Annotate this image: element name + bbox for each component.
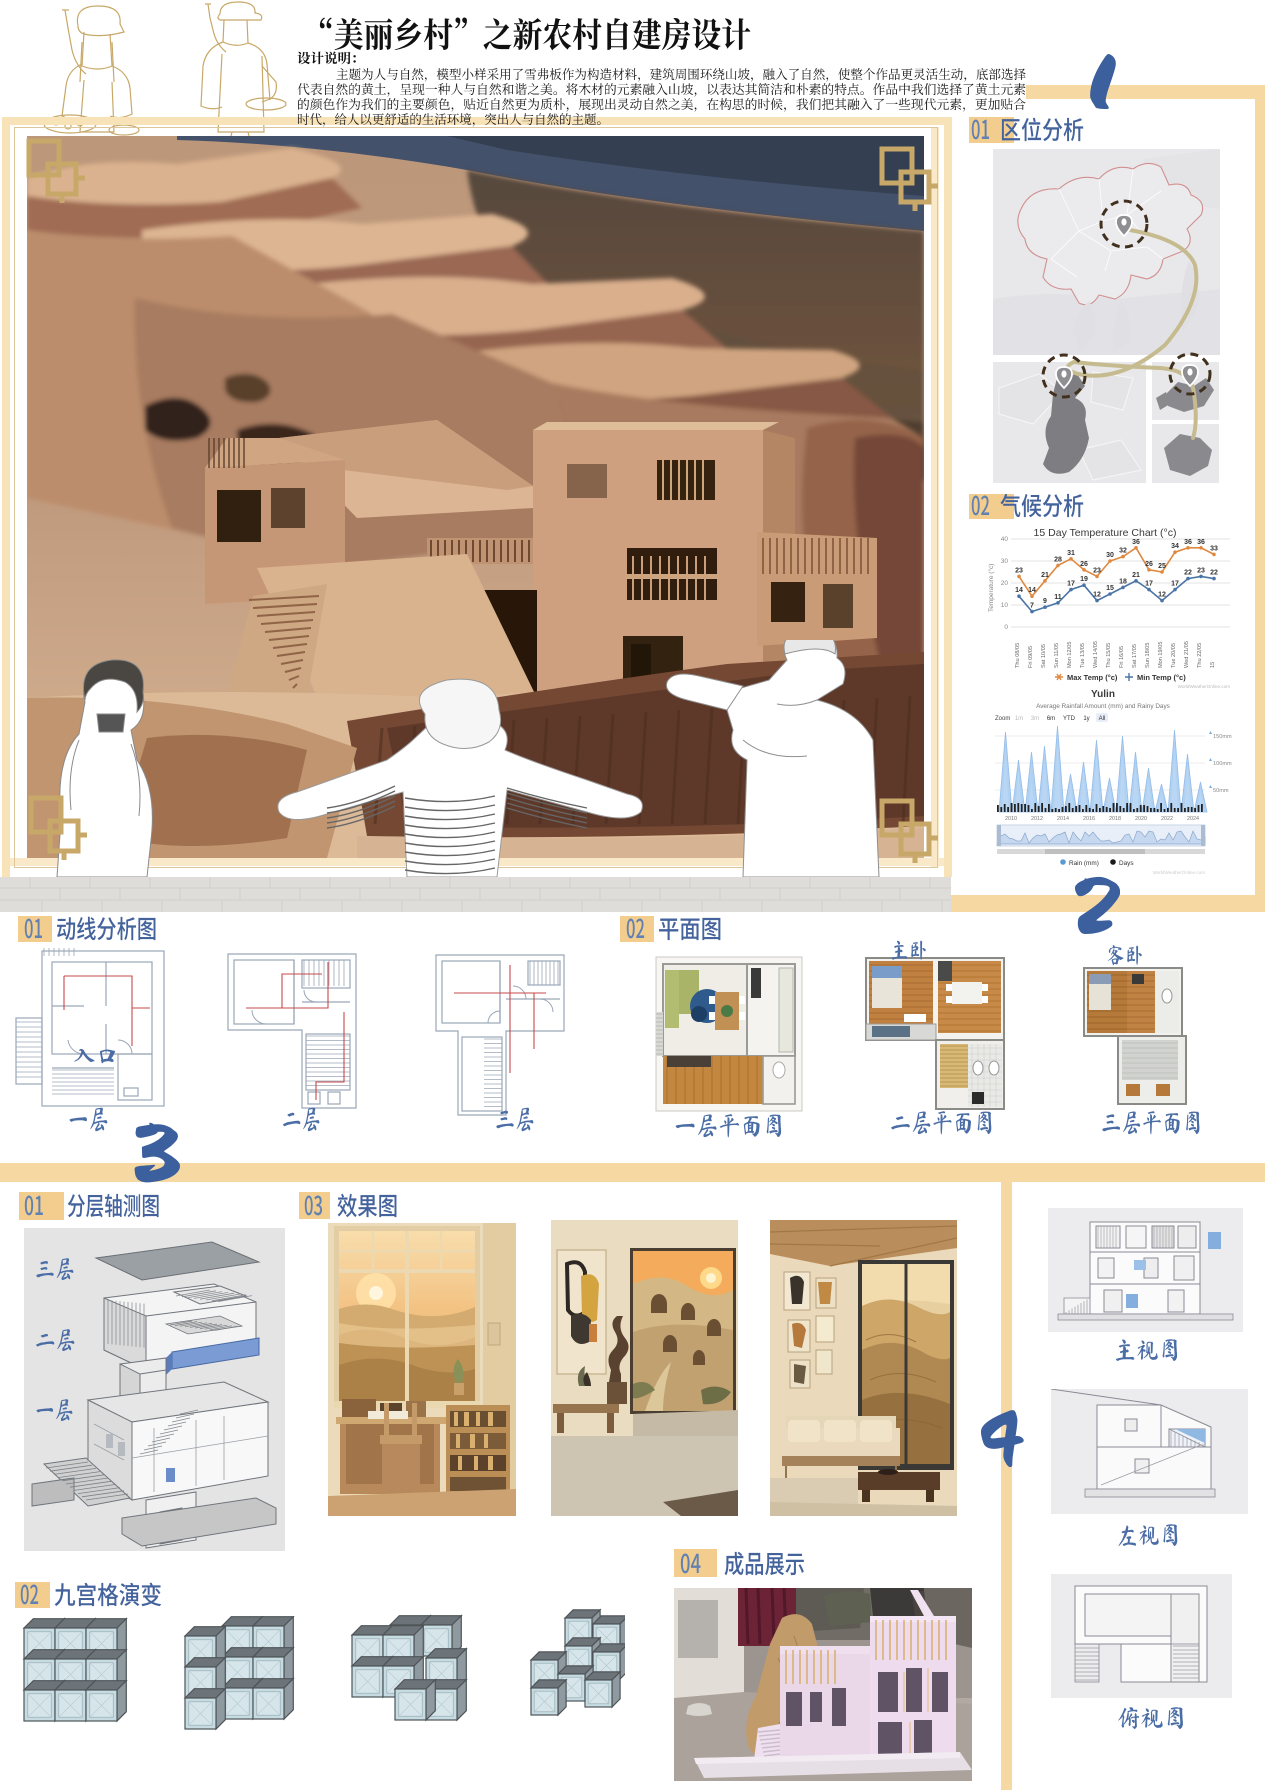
svg-text:10: 10 [1001,602,1009,609]
svg-text:2014: 2014 [1057,816,1069,822]
svg-text:15: 15 [1106,585,1114,592]
svg-text:14: 14 [1028,587,1036,594]
svg-text:17: 17 [1067,581,1075,588]
svg-text:36: 36 [1184,539,1192,546]
svg-text:32: 32 [1119,548,1127,555]
svg-text:40: 40 [1001,536,1009,543]
svg-text:12: 12 [1093,592,1101,599]
svg-text:Sun 18/05: Sun 18/05 [1145,642,1151,668]
svg-text:Wed 21/05: Wed 21/05 [1184,641,1190,668]
svg-text:2012: 2012 [1031,816,1043,822]
svg-text:14: 14 [1015,587,1023,594]
svg-text:Fri 16/05: Fri 16/05 [1119,646,1125,668]
svg-text:1y: 1y [1083,716,1089,722]
svg-text:36: 36 [1197,539,1205,546]
svg-text:Average Rainfall Amount (mm) a: Average Rainfall Amount (mm) and Rainy D… [1036,703,1170,710]
svg-text:26: 26 [1080,561,1088,568]
svg-text:23: 23 [1015,567,1023,574]
svg-text:22: 22 [1210,570,1218,577]
svg-text:33: 33 [1210,545,1218,552]
svg-text:31: 31 [1067,550,1075,557]
svg-text:23: 23 [1197,567,1205,574]
svg-text:17: 17 [1145,581,1153,588]
svg-text:2022: 2022 [1161,816,1173,822]
svg-text:15: 15 [1210,662,1216,668]
svg-text:21: 21 [1132,572,1140,579]
svg-text:Tue 13/05: Tue 13/05 [1080,643,1086,668]
svg-text:Temperature (°c): Temperature (°c) [987,564,995,612]
svg-text:Fri 09/05: Fri 09/05 [1028,646,1034,668]
svg-text:1m: 1m [1015,716,1023,722]
svg-text:28: 28 [1054,556,1062,563]
svg-text:3m: 3m [1031,716,1039,722]
svg-text:All: All [1099,716,1106,722]
svg-text:YTD: YTD [1063,716,1076,722]
svg-text:9: 9 [1043,598,1047,605]
svg-text:15 Day Temperature Chart (°c): 15 Day Temperature Chart (°c) [1034,527,1177,539]
svg-text:Max Temp (°c): Max Temp (°c) [1067,673,1118,682]
svg-text:23: 23 [1093,567,1101,574]
svg-text:Thu 22/05: Thu 22/05 [1197,643,1203,668]
svg-text:36: 36 [1132,539,1140,546]
svg-text:Sat 10/05: Sat 10/05 [1041,644,1047,668]
svg-text:Mon 19/05: Mon 19/05 [1158,642,1164,668]
svg-text:17: 17 [1171,581,1179,588]
svg-text:30: 30 [1001,558,1009,565]
svg-text:50mm: 50mm [1213,788,1229,794]
svg-text:Thu 08/05: Thu 08/05 [1015,643,1021,668]
svg-text:18: 18 [1119,578,1127,585]
svg-text:Mon 12/05: Mon 12/05 [1067,642,1073,668]
svg-text:100mm: 100mm [1213,761,1232,767]
svg-text:Days: Days [1119,860,1134,867]
svg-text:7: 7 [1030,603,1034,610]
svg-text:Min Temp (°c): Min Temp (°c) [1137,673,1186,682]
svg-text:34: 34 [1171,543,1179,550]
svg-text:Sat 17/05: Sat 17/05 [1132,644,1138,668]
svg-text:Wed 14/05: Wed 14/05 [1093,641,1099,668]
svg-text:150mm: 150mm [1213,734,1232,740]
svg-text:2020: 2020 [1135,816,1147,822]
svg-text:2024: 2024 [1187,816,1199,822]
svg-text:0: 0 [1004,624,1008,631]
svg-text:19: 19 [1080,576,1088,583]
svg-text:22: 22 [1184,570,1192,577]
svg-text:WorldWeatherOnline.com: WorldWeatherOnline.com [1153,870,1206,875]
svg-text:20: 20 [1001,580,1009,587]
svg-text:2016: 2016 [1083,816,1095,822]
svg-text:30: 30 [1106,552,1114,559]
svg-text:2018: 2018 [1109,816,1121,822]
svg-text:21: 21 [1041,572,1049,579]
svg-text:11: 11 [1054,594,1062,601]
svg-text:Thu 15/05: Thu 15/05 [1106,643,1112,668]
svg-text:Sun 11/05: Sun 11/05 [1054,643,1060,668]
svg-text:Zoom: Zoom [995,716,1010,722]
svg-text:25: 25 [1158,563,1166,570]
svg-text:2010: 2010 [1005,816,1017,822]
svg-text:26: 26 [1145,561,1153,568]
svg-text:12: 12 [1158,592,1166,599]
svg-text:Tue 20/05: Tue 20/05 [1171,643,1177,668]
svg-text:6m: 6m [1047,716,1055,722]
svg-text:Rain (mm): Rain (mm) [1069,860,1099,867]
svg-text:Yulin: Yulin [1091,689,1115,700]
